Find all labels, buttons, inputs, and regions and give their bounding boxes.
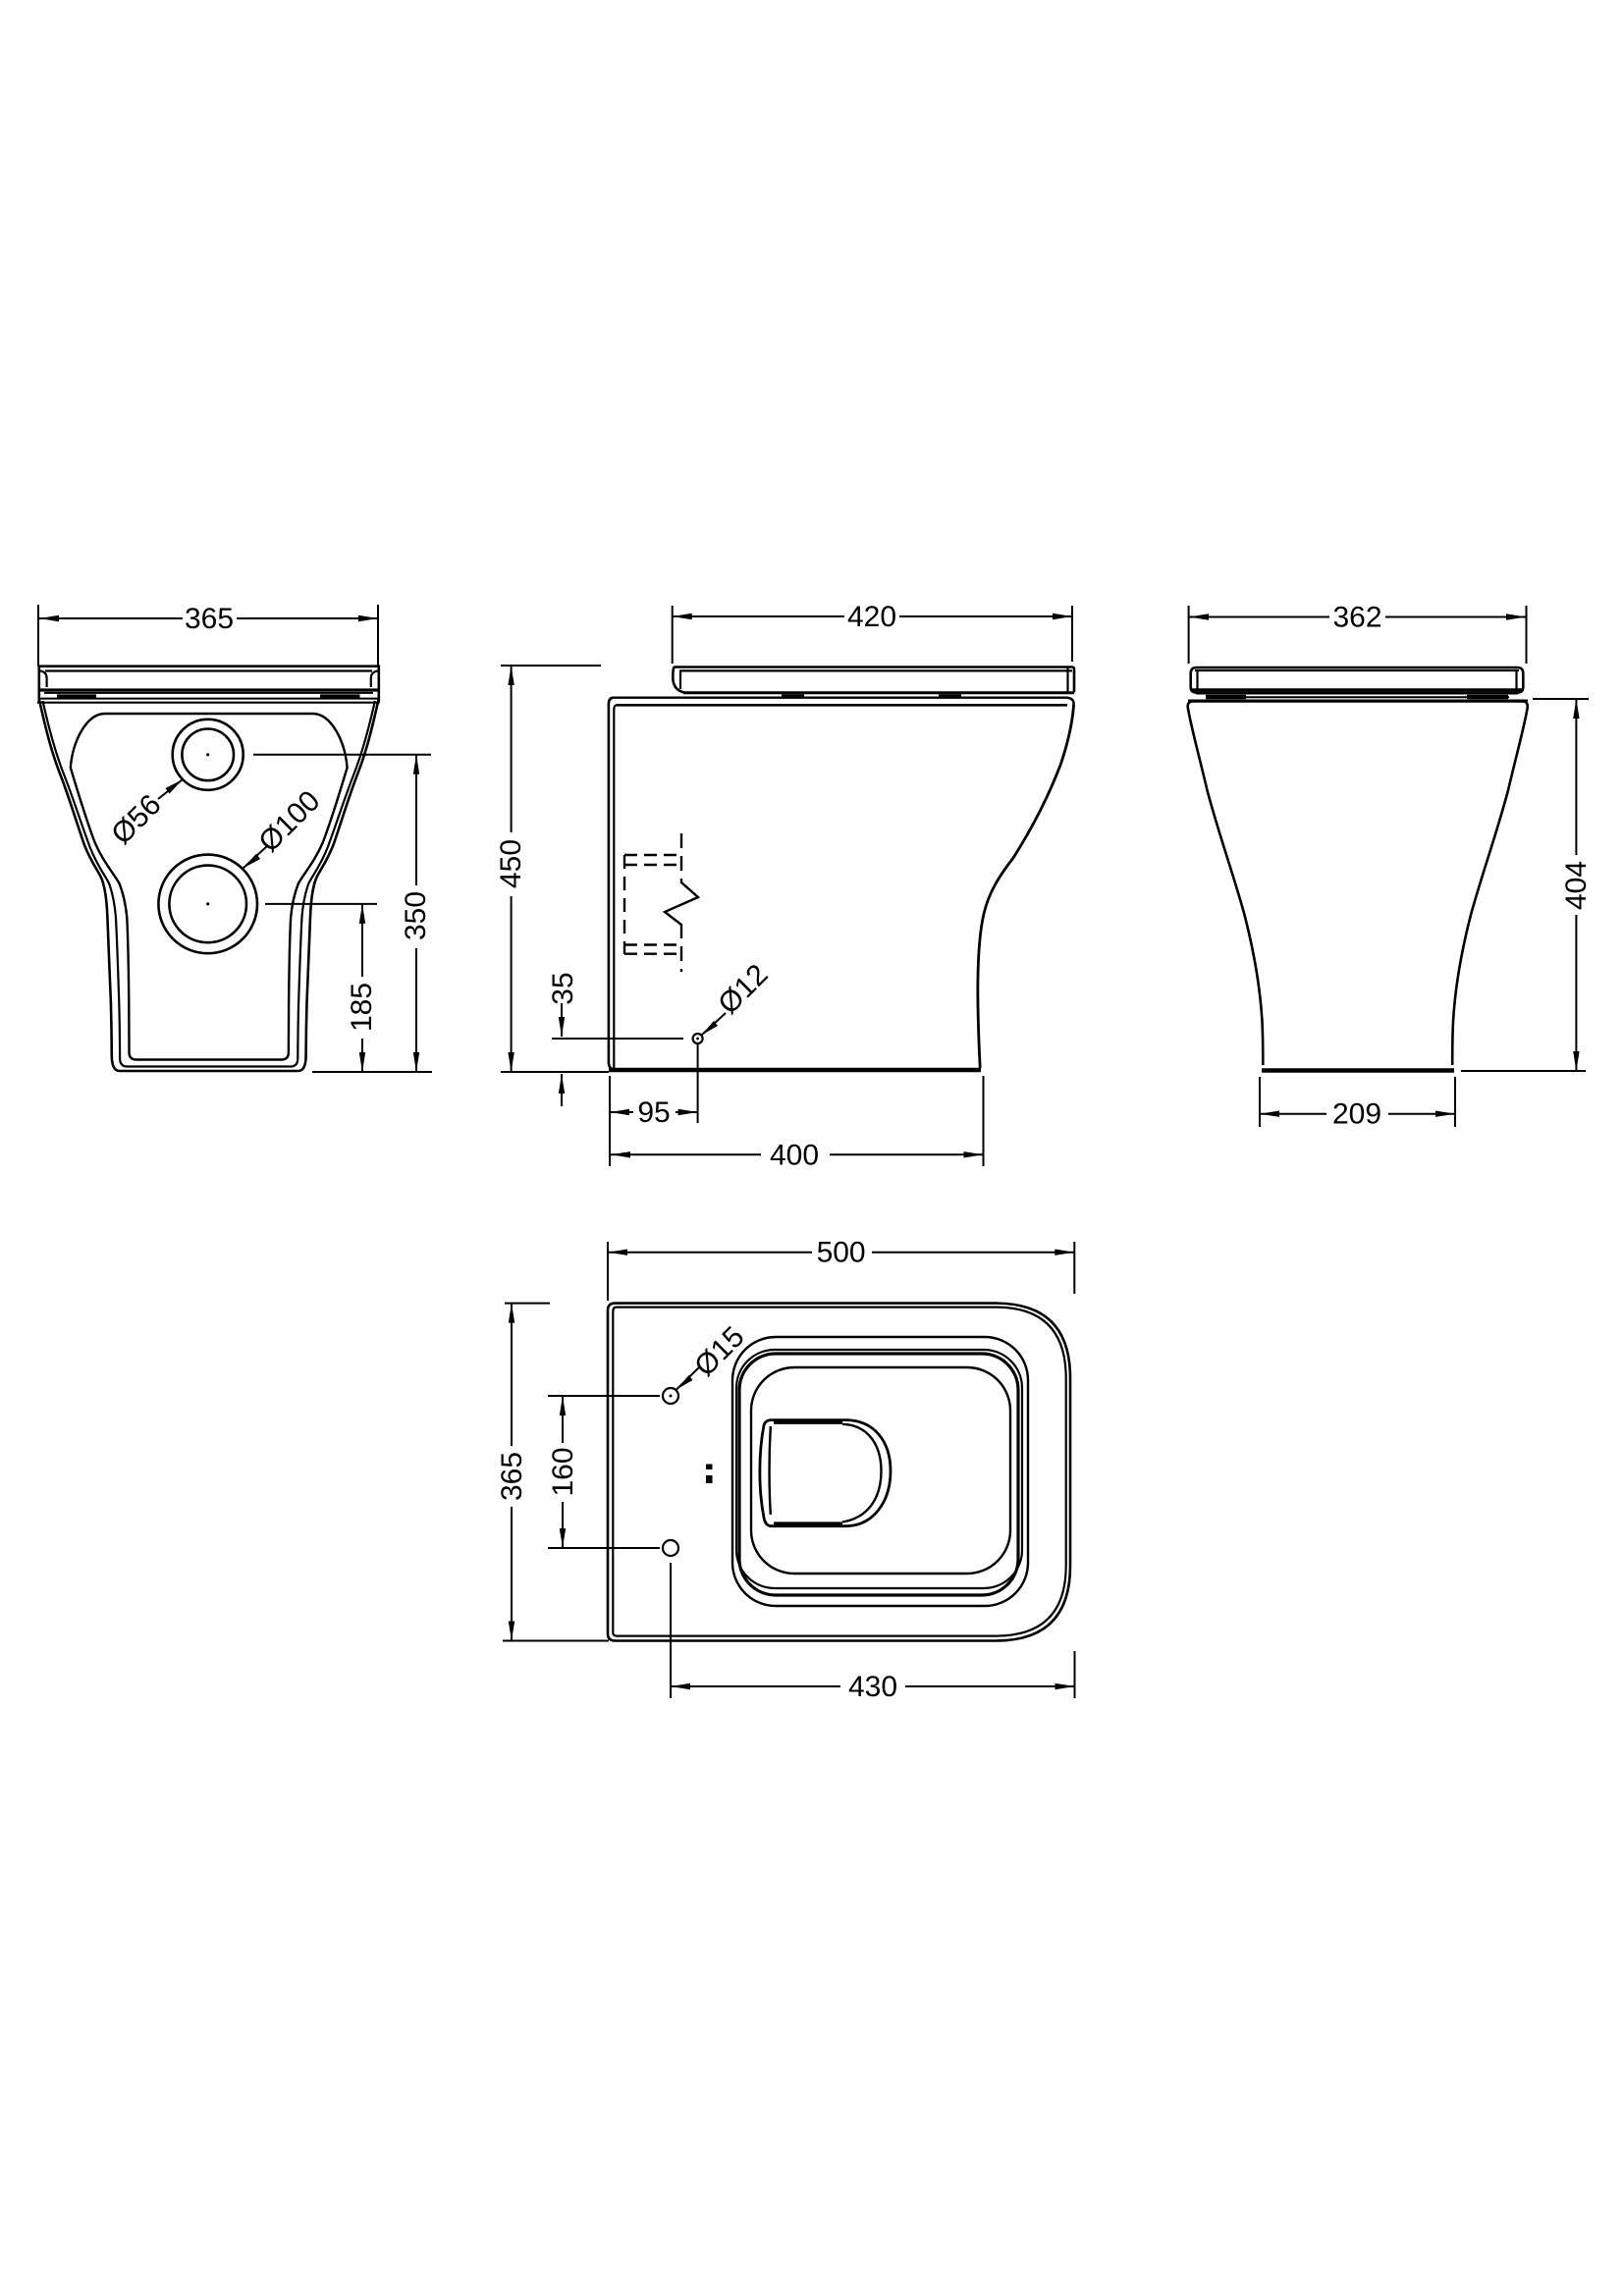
svg-text:209: 209 (1332, 1098, 1381, 1131)
svg-text:400: 400 (770, 1139, 819, 1171)
svg-text:420: 420 (847, 601, 896, 633)
svg-text:160: 160 (547, 1447, 579, 1496)
svg-text:185: 185 (346, 983, 378, 1032)
svg-text:350: 350 (400, 891, 432, 940)
svg-text:95: 95 (637, 1096, 670, 1129)
svg-text:500: 500 (817, 1237, 866, 1269)
svg-text:365: 365 (496, 1452, 528, 1501)
svg-text:404: 404 (1560, 861, 1593, 910)
svg-text:450: 450 (495, 839, 527, 888)
svg-text:362: 362 (1332, 602, 1381, 634)
svg-text:430: 430 (848, 1671, 897, 1703)
svg-text:35: 35 (547, 972, 579, 1004)
svg-text:365: 365 (185, 603, 234, 635)
